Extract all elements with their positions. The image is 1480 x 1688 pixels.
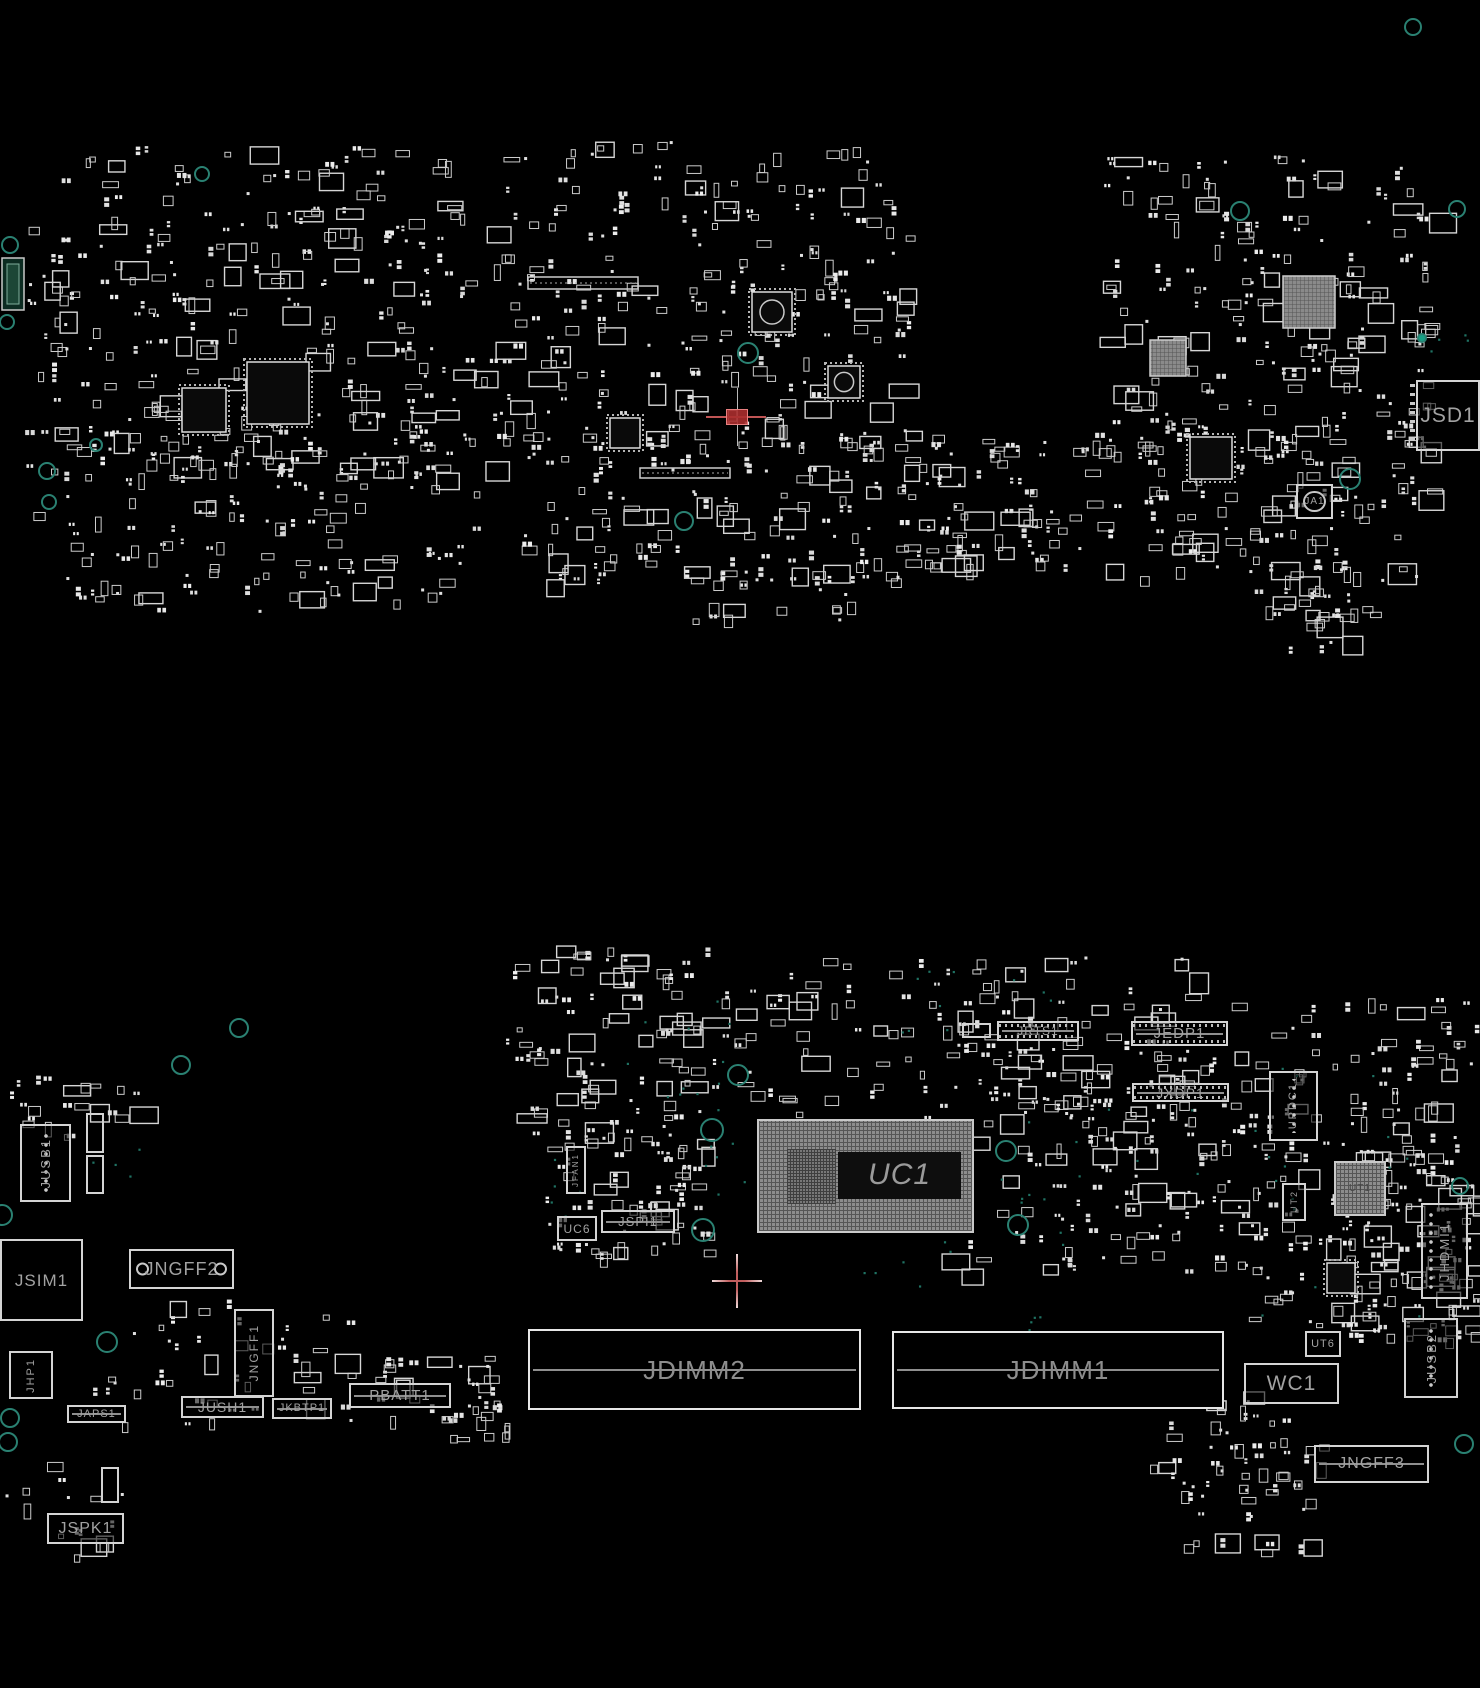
component-label: UT1 — [1349, 1184, 1371, 1194]
component-label: UT6 — [1311, 1339, 1335, 1350]
component-wc1[interactable]: WC1 — [1244, 1363, 1339, 1404]
bga-die: UC1 — [838, 1152, 962, 1199]
component-label: JHDMI1 — [1438, 1222, 1451, 1281]
bga-subgrid — [787, 1149, 836, 1204]
component-jspk1[interactable]: JSPK1 — [47, 1513, 124, 1544]
component-label: JUSB2 — [1425, 1333, 1438, 1383]
component-label: JSPI1 — [618, 1215, 658, 1228]
component-label: UPDC1 — [1288, 1082, 1299, 1129]
component-label: JAPS1 — [77, 1409, 116, 1420]
component-uc6[interactable]: UC6 — [557, 1216, 597, 1241]
component-label: JKBTP1 — [279, 1403, 325, 1414]
component-updc1[interactable]: UPDC1 — [1269, 1071, 1318, 1141]
component-jrts1[interactable]: JRTS1 — [997, 1021, 1079, 1041]
component-label: UC1 — [868, 1160, 931, 1190]
component-label: JSIM1 — [15, 1272, 68, 1289]
component-jusb2[interactable]: JUSB2 — [1404, 1318, 1458, 1398]
component-jngff3[interactable]: JNGFF3 — [1314, 1445, 1429, 1483]
component-unlabeled[interactable] — [86, 1113, 104, 1153]
component-japs1[interactable]: JAPS1 — [67, 1405, 126, 1423]
component-label: WC1 — [1267, 1373, 1317, 1394]
component-label: JDIMM1 — [1007, 1357, 1110, 1383]
component-jngff1[interactable]: JNGFF1 — [234, 1309, 274, 1397]
component-label: PBATT1 — [369, 1388, 431, 1403]
component-jush1[interactable]: JUSH1 — [181, 1396, 264, 1418]
component-ut1[interactable]: UT1 — [1334, 1161, 1386, 1216]
component-label: JFAN1 — [572, 1153, 580, 1187]
component-label: JUSB1 — [39, 1138, 52, 1188]
component-label: UT2 — [1290, 1190, 1299, 1213]
pin-holes — [1426, 1211, 1436, 1291]
component-label: JA1 — [1304, 497, 1324, 507]
component-pbatt1[interactable]: PBATT1 — [349, 1383, 451, 1408]
component-jkbtp1[interactable]: JKBTP1 — [272, 1398, 332, 1419]
component-label: JNGFF1 — [248, 1324, 260, 1381]
component-jxdp1[interactable]: JXDP1 — [1132, 1083, 1229, 1102]
component-jdimm2[interactable]: JDIMM2 — [528, 1329, 861, 1410]
component-jngff2[interactable]: JNGFF2 — [129, 1249, 234, 1289]
component-label: UC6 — [563, 1223, 590, 1235]
component-jusb1[interactable]: JUSB1 — [20, 1124, 71, 1202]
component-jspi1[interactable]: JSPI1 — [601, 1210, 675, 1233]
component-jsd1[interactable]: JSD1 — [1416, 380, 1480, 451]
component-label: JXDP1 — [1156, 1086, 1205, 1100]
component-unlabeled[interactable] — [962, 1023, 991, 1038]
component-uc1[interactable]: UC1 — [757, 1119, 974, 1233]
component-unlabeled[interactable] — [86, 1155, 104, 1194]
component-label: JRTS1 — [1017, 1025, 1058, 1037]
component-label: JNGFF2 — [144, 1260, 218, 1278]
component-label: JNGFF3 — [1338, 1456, 1404, 1472]
component-jhdmi1[interactable]: JHDMI1 — [1421, 1203, 1468, 1299]
component-label: JDIMM2 — [643, 1357, 746, 1383]
component-ut2[interactable]: UT2 — [1282, 1183, 1306, 1221]
component-ja1[interactable]: JA1 — [1296, 484, 1333, 519]
component-label: JSPK1 — [59, 1521, 113, 1537]
component-label: JHP1 — [26, 1358, 37, 1393]
component-jhp1[interactable]: JHP1 — [9, 1351, 53, 1399]
component-jdimm1[interactable]: JDIMM1 — [892, 1331, 1224, 1409]
scatter-components-layer[interactable] — [0, 0, 1480, 1688]
component-jsim1[interactable]: JSIM1 — [0, 1239, 83, 1321]
component-label: JUSH1 — [198, 1400, 247, 1414]
component-unlabeled[interactable] — [101, 1467, 119, 1503]
pcb-boardview: JSD1JA1JRTS1JEDP1JXDP1UPDC1UC1UT1UT2JHDM… — [0, 0, 1480, 1688]
component-label: JEDP1 — [1154, 1026, 1206, 1041]
component-jfan1[interactable]: JFAN1 — [566, 1146, 586, 1194]
component-label: JSD1 — [1420, 405, 1475, 426]
component-ut6[interactable]: UT6 — [1305, 1331, 1341, 1357]
component-jedp1[interactable]: JEDP1 — [1131, 1021, 1228, 1046]
